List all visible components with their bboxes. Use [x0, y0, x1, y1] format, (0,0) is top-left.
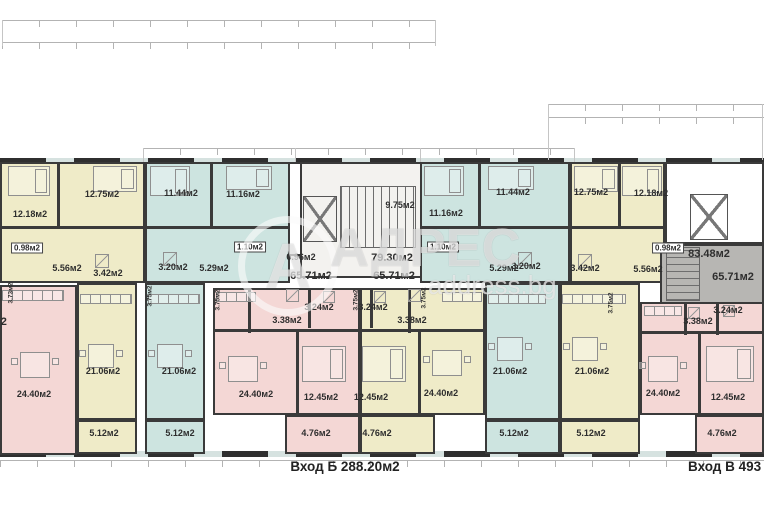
table-icon	[648, 356, 678, 382]
area-label: 3.75м2	[608, 292, 615, 313]
area-label: 4.76м2	[362, 428, 391, 438]
area-label: 79.30м2	[371, 252, 413, 264]
area-label: 3.24м2	[358, 302, 387, 312]
dimension-tick	[548, 104, 549, 160]
shower-icon	[286, 289, 299, 302]
dimension-tick	[295, 148, 296, 162]
chair-icon	[185, 350, 192, 357]
dimension-line	[143, 148, 575, 155]
dimension-line	[548, 117, 764, 124]
area-label: 9.75м2	[385, 200, 414, 210]
dimension-tick	[420, 148, 421, 162]
area-label: 21.06м2	[162, 366, 196, 376]
wall-segment	[57, 162, 60, 228]
table-icon	[572, 337, 598, 361]
area-label: 24.40м2	[239, 389, 273, 399]
area-label: 3.38м2	[683, 316, 712, 326]
shower-icon	[95, 254, 109, 268]
area-label: 0.98м2	[11, 243, 43, 254]
area-label: 11.16м2	[429, 208, 463, 218]
area-label: 12.45м2	[304, 392, 338, 402]
area-label: 0.98м2	[652, 243, 684, 254]
area-label: 12.18м2	[13, 209, 47, 219]
area-label: 83.48м2	[688, 248, 730, 260]
area-label: 11.44м2	[164, 188, 198, 198]
area-label: 1.10м2	[427, 242, 459, 253]
wall-segment	[360, 329, 485, 332]
bed-icon	[362, 346, 406, 382]
area-label: 3.38м2	[272, 315, 301, 325]
chair-icon	[423, 356, 430, 363]
area-label: 3.75м2	[421, 287, 428, 308]
area-label: 3.42м2	[93, 268, 122, 278]
dimension-tick	[574, 148, 575, 162]
table-icon	[20, 352, 50, 378]
wall-segment	[210, 162, 213, 228]
area-label: 5.56м2	[633, 264, 662, 274]
shower-icon	[408, 289, 421, 302]
table-icon	[157, 344, 183, 368]
counter-icon	[488, 294, 546, 304]
elev-icon	[303, 196, 337, 242]
area-label: 65.71м2	[290, 270, 332, 282]
area-label: 3.75м2	[215, 289, 222, 310]
area-label: 5.12м2	[89, 428, 118, 438]
area-label: 12.45м2	[711, 392, 745, 402]
area-label: 5.12м2	[576, 428, 605, 438]
chair-icon	[525, 343, 532, 350]
area-label: 3.73м2	[8, 282, 15, 303]
area-label: 24.40м2	[646, 388, 680, 398]
chair-icon	[600, 343, 607, 350]
area-label: 12.75м2	[574, 187, 608, 197]
stairs-icon	[340, 186, 416, 248]
area-label: 65.71м2	[712, 271, 754, 283]
dimension-tick	[143, 148, 144, 162]
wall-segment	[296, 330, 299, 415]
area-label: 0.96м2	[286, 252, 315, 262]
wall-segment	[640, 331, 764, 334]
area-label: 11.44м2	[496, 187, 530, 197]
chair-icon	[219, 362, 226, 369]
counter-icon	[148, 294, 200, 304]
area-label: 21.06м2	[86, 366, 120, 376]
dimension-tick	[2, 20, 3, 46]
bed-icon	[706, 346, 754, 382]
counter-icon	[80, 294, 132, 304]
counter-icon	[216, 292, 256, 302]
wall-segment	[478, 162, 481, 228]
area-label: 11.16м2	[226, 189, 260, 199]
area-label: 24.40м2	[424, 388, 458, 398]
area-label: 1.10м2	[234, 242, 266, 253]
dimension-line	[548, 104, 764, 111]
area-label: 3.75м2	[147, 285, 154, 306]
wall-segment	[420, 226, 665, 229]
area-label: 5.12м2	[165, 428, 194, 438]
area-label: 3.20м2	[511, 261, 540, 271]
bed-icon	[302, 346, 346, 382]
chair-icon	[79, 350, 86, 357]
chair-icon	[488, 343, 495, 350]
counter-icon	[562, 294, 626, 304]
area-label: 21.06м2	[493, 366, 527, 376]
area-label: 21.06м2	[575, 366, 609, 376]
area-label: 5.12м2	[499, 428, 528, 438]
area-label: 3.24м2	[713, 305, 742, 315]
entrance-v-label: Вход В 493	[688, 459, 761, 474]
elev-icon	[690, 194, 728, 240]
dimension-line	[2, 42, 436, 49]
counter-icon	[442, 292, 482, 302]
table-icon	[497, 337, 523, 361]
area-label: 5.56м2	[52, 263, 81, 273]
table-icon	[88, 344, 114, 368]
chair-icon	[260, 362, 267, 369]
bed-icon	[8, 166, 50, 196]
floor-plan: 12.18м212.75м25.56м23.42м221.06м25.12м22…	[0, 0, 764, 510]
dimension-tick	[435, 20, 436, 46]
area-label: 3.75м2	[353, 289, 360, 310]
chair-icon	[680, 362, 687, 369]
chair-icon	[639, 362, 646, 369]
area-label: 24.40м2	[17, 389, 51, 399]
area-label: 65.71м2	[373, 270, 415, 282]
dimension-tick	[762, 104, 763, 160]
table-icon	[228, 356, 258, 382]
area-label: 5.29м2	[199, 263, 228, 273]
area-label: 3.20м2	[158, 262, 187, 272]
chair-icon	[563, 343, 570, 350]
chair-icon	[464, 356, 471, 363]
area-label: 12.75м2	[85, 189, 119, 199]
entrance-b-label: Вход Б 288.20м2	[290, 459, 399, 474]
area-label: 12.18м2	[634, 188, 668, 198]
wall-segment	[698, 333, 701, 415]
area-label: 3.42м2	[570, 263, 599, 273]
bed-icon	[424, 166, 464, 196]
area-label: 3.38м2	[397, 315, 426, 325]
area-label: 4.76м2	[707, 428, 736, 438]
bed-icon	[226, 166, 272, 190]
chair-icon	[52, 358, 59, 365]
area-label: 12.45м2	[354, 392, 388, 402]
wall-segment	[418, 330, 421, 415]
chair-icon	[148, 350, 155, 357]
area-label: 3.24м2	[304, 302, 333, 312]
wall-segment	[0, 226, 290, 229]
wall-segment	[213, 329, 360, 332]
chair-icon	[116, 350, 123, 357]
area-label: 65.71м2	[0, 316, 7, 328]
chair-icon	[11, 358, 18, 365]
wall-segment	[618, 162, 621, 228]
table-icon	[432, 350, 462, 376]
dimension-line	[2, 20, 436, 27]
counter-icon	[644, 306, 682, 316]
area-label: 4.76м2	[301, 428, 330, 438]
